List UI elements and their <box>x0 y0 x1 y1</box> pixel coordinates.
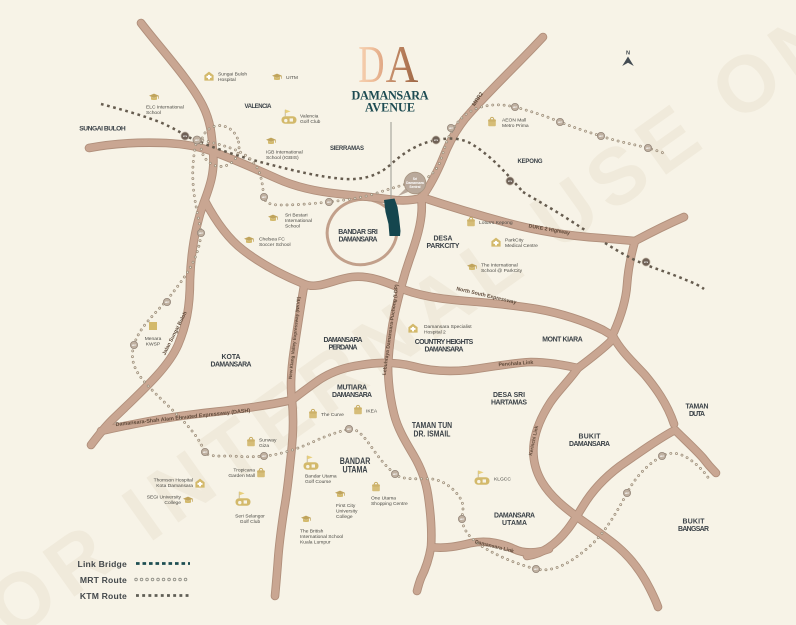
svg-text:DAMANSARA: DAMANSARA <box>324 337 363 344</box>
svg-text:School: School <box>285 224 300 230</box>
svg-text:The International: The International <box>481 263 518 269</box>
svg-text:College: College <box>336 514 353 520</box>
svg-text:KEPONG: KEPONG <box>518 159 543 165</box>
svg-text:KTM Route: KTM Route <box>80 591 127 601</box>
svg-text:PERDANA: PERDANA <box>329 345 358 352</box>
svg-text:HARTAMAS: HARTAMAS <box>491 400 527 407</box>
svg-text:IGB International: IGB International <box>266 150 303 156</box>
svg-text:Golf Club: Golf Club <box>300 119 321 125</box>
svg-text:International: International <box>285 218 312 224</box>
svg-text:Golf Club: Golf Club <box>240 519 261 525</box>
svg-text:AEON Mall: AEON Mall <box>502 118 526 124</box>
svg-text:BANDAR SRI: BANDAR SRI <box>338 229 378 236</box>
svg-text:UITM: UITM <box>286 75 298 81</box>
svg-text:International School: International School <box>300 534 343 540</box>
svg-text:DAMANSARA: DAMANSARA <box>494 513 535 520</box>
svg-text:VALENCIA: VALENCIA <box>245 104 273 110</box>
svg-text:SEGi University: SEGi University <box>147 495 182 501</box>
svg-text:Golf Course: Golf Course <box>305 479 331 485</box>
svg-text:School (IGBIS): School (IGBIS) <box>266 155 299 161</box>
svg-text:Menara: Menara <box>145 336 162 342</box>
svg-text:DR. ISMAIL: DR. ISMAIL <box>414 429 451 439</box>
svg-text:First City: First City <box>336 503 356 509</box>
svg-text:Kota Damansara: Kota Damansara <box>156 483 193 489</box>
svg-text:IKEA: IKEA <box>366 409 378 415</box>
svg-text:DAMANSARA: DAMANSARA <box>339 237 378 244</box>
svg-text:DESA: DESA <box>434 236 453 243</box>
svg-text:Valencia: Valencia <box>300 114 319 120</box>
svg-text:A: A <box>386 35 419 94</box>
svg-text:School: School <box>146 110 161 116</box>
svg-text:MUTIARA: MUTIARA <box>337 385 367 392</box>
svg-text:BANGSAR: BANGSAR <box>678 526 709 533</box>
svg-text:The Curve: The Curve <box>321 412 344 418</box>
svg-text:Medical Centre: Medical Centre <box>505 243 538 249</box>
svg-text:KTM: KTM <box>508 181 513 183</box>
svg-text:Damansara Specialist: Damansara Specialist <box>424 324 472 330</box>
svg-text:SIERRAMAS: SIERRAMAS <box>330 146 364 152</box>
svg-text:KTM: KTM <box>434 140 439 142</box>
svg-text:Sri Bestari: Sri Bestari <box>285 213 308 219</box>
svg-text:Metro Prima: Metro Prima <box>502 123 529 129</box>
svg-text:Shopping Centre: Shopping Centre <box>371 501 408 507</box>
svg-text:University: University <box>336 509 358 515</box>
svg-text:BUKIT: BUKIT <box>579 434 602 441</box>
svg-text:D: D <box>358 35 384 93</box>
svg-text:COUNTRY HEIGHTS: COUNTRY HEIGHTS <box>415 339 474 346</box>
svg-text:KTM: KTM <box>644 262 649 264</box>
svg-text:DESA SRI: DESA SRI <box>493 392 525 399</box>
svg-text:Thomson Hospital: Thomson Hospital <box>154 478 193 484</box>
svg-text:MRT Route: MRT Route <box>80 575 127 585</box>
svg-text:Chelsea FC: Chelsea FC <box>259 237 285 243</box>
svg-text:Sunway: Sunway <box>259 438 277 444</box>
svg-text:ELC International: ELC International <box>146 105 184 111</box>
svg-text:KOTA: KOTA <box>222 354 241 361</box>
svg-text:College: College <box>164 500 181 506</box>
svg-text:Giza: Giza <box>259 443 269 449</box>
svg-text:Sentral: Sentral <box>409 185 420 189</box>
svg-text:DAMANSARA: DAMANSARA <box>425 347 464 354</box>
svg-text:AVENUE: AVENUE <box>365 101 415 115</box>
svg-text:DAMANSARA: DAMANSARA <box>569 441 610 448</box>
svg-text:TAMAN: TAMAN <box>686 404 709 411</box>
svg-text:DAMANSARA: DAMANSARA <box>211 362 252 369</box>
svg-text:KTM: KTM <box>183 136 188 138</box>
svg-text:BUKIT: BUKIT <box>683 519 706 526</box>
svg-text:UTAMA: UTAMA <box>343 465 368 475</box>
svg-text:Garden Mall: Garden Mall <box>228 473 255 479</box>
svg-text:PARKCITY: PARKCITY <box>427 243 460 250</box>
svg-text:DAMANSARA: DAMANSARA <box>332 392 372 399</box>
svg-text:DUTA: DUTA <box>689 411 705 418</box>
svg-text:N: N <box>626 51 630 57</box>
svg-text:KLGCC: KLGCC <box>494 477 511 483</box>
svg-text:Bandar Utama: Bandar Utama <box>305 474 337 480</box>
svg-text:Kuala Lumpur: Kuala Lumpur <box>300 540 331 546</box>
svg-text:Tropicana: Tropicana <box>233 468 255 474</box>
svg-text:Link Bridge: Link Bridge <box>78 559 127 569</box>
svg-text:SUNGAI BULOH: SUNGAI BULOH <box>79 126 126 133</box>
svg-text:Hospital 2: Hospital 2 <box>424 330 446 336</box>
svg-text:Seri Selangor: Seri Selangor <box>235 514 265 520</box>
svg-text:Hospital: Hospital <box>218 77 236 83</box>
svg-text:Soccer School: Soccer School <box>259 242 291 248</box>
svg-text:MONT KIARA: MONT KIARA <box>542 337 583 344</box>
svg-text:ParkCity: ParkCity <box>505 238 524 244</box>
svg-text:KWSP: KWSP <box>146 342 160 348</box>
svg-text:The British: The British <box>300 529 324 535</box>
svg-text:One Utama: One Utama <box>371 496 396 502</box>
svg-text:School @ ParkCity: School @ ParkCity <box>481 268 523 274</box>
svg-text:Sungai Buloh: Sungai Buloh <box>218 72 247 78</box>
svg-text:UTAMA: UTAMA <box>502 520 527 527</box>
svg-text:Lotus's Kepong: Lotus's Kepong <box>479 220 513 226</box>
